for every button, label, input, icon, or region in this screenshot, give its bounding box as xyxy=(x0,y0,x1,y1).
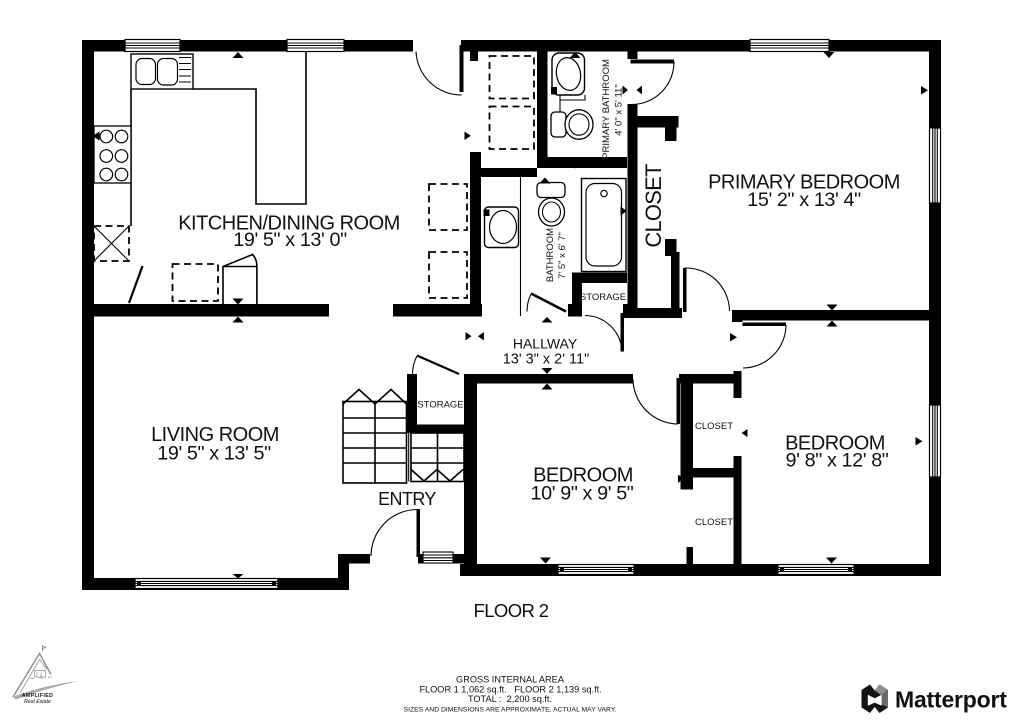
svg-text:FLOOR 1 1,062 sq.ft. FLOOR 2: FLOOR 1 1,062 sq.ft. FLOOR 2 1,139 sq.ft… xyxy=(419,685,601,695)
svg-text:13' 3" x 2' 11": 13' 3" x 2' 11" xyxy=(503,352,590,368)
svg-text:CLOSET: CLOSET xyxy=(641,164,666,248)
svg-text:HALLWAY: HALLWAY xyxy=(513,336,578,352)
svg-text:CLOSET: CLOSET xyxy=(695,421,733,432)
svg-text:19' 5" x 13' 5": 19' 5" x 13' 5" xyxy=(157,443,271,465)
svg-text:9' 8" x 12' 8": 9' 8" x 12' 8" xyxy=(786,450,889,472)
svg-text:GROSS INTERNAL AREA: GROSS INTERNAL AREA xyxy=(456,675,565,685)
svg-text:15' 2" x 13' 4": 15' 2" x 13' 4" xyxy=(747,189,861,211)
svg-text:SIZES AND DIMENSIONS ARE APPRO: SIZES AND DIMENSIONS ARE APPROXIMATE, AC… xyxy=(404,707,617,714)
svg-text:7' 5" x 6' 7": 7' 5" x 6' 7" xyxy=(557,232,568,279)
svg-text:10' 9" x 9' 5": 10' 9" x 9' 5" xyxy=(531,483,634,505)
svg-text:STORAGE: STORAGE xyxy=(417,400,463,411)
svg-text:CLOSET: CLOSET xyxy=(695,517,733,528)
svg-text:19' 5" x 13' 0": 19' 5" x 13' 0" xyxy=(233,229,347,251)
svg-text:Matterport: Matterport xyxy=(895,687,1007,713)
svg-text:AMPLIFIED: AMPLIFIED xyxy=(22,693,54,699)
svg-text:FLOOR 2: FLOOR 2 xyxy=(474,600,549,621)
svg-text:PRIMARY BATHROOM: PRIMARY BATHROOM xyxy=(601,59,612,159)
svg-text:STORAGE: STORAGE xyxy=(580,292,626,303)
svg-text:BATHROOM: BATHROOM xyxy=(545,228,556,282)
svg-text:ENTRY: ENTRY xyxy=(378,489,436,509)
svg-text:4' 0" x 5' 11": 4' 0" x 5' 11" xyxy=(614,84,625,135)
svg-text:Real Estate: Real Estate xyxy=(24,699,51,705)
svg-text:TOTAL : 2,200 sq.ft.: TOTAL : 2,200 sq.ft. xyxy=(468,694,552,704)
